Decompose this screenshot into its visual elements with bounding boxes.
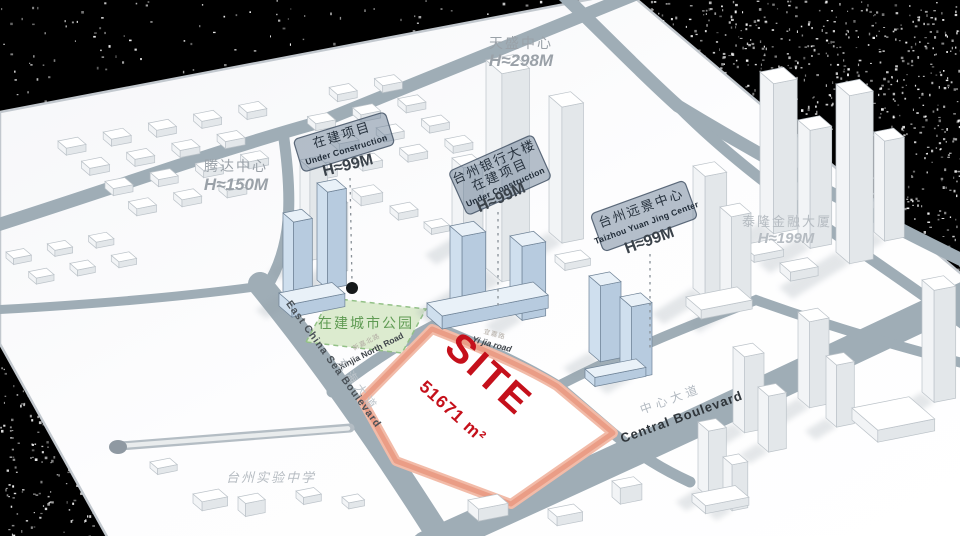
site-analysis-map: 天盛中心 H≈298M 腾达中心 H≈150M 泰隆金融大厦 H≈199M 台州… [0, 0, 960, 536]
tailong-height: H≈199M [758, 230, 815, 247]
tiansheng-height: H≈298M [489, 51, 554, 70]
tengda-name: 腾达中心 [204, 158, 268, 174]
tailong-name: 泰隆金融大厦 [742, 214, 832, 229]
track-end-blob [109, 440, 127, 454]
map-canvas: 天盛中心 H≈298M 腾达中心 H≈150M 泰隆金融大厦 H≈199M 台州… [0, 0, 960, 536]
school-label: 台州实验中学 [226, 470, 316, 485]
tengda-height: H≈150M [204, 175, 269, 194]
park-label: 在建城市公园 [318, 315, 414, 331]
tiansheng-name: 天盛中心 [489, 35, 553, 51]
site-marker-dot [346, 282, 358, 294]
